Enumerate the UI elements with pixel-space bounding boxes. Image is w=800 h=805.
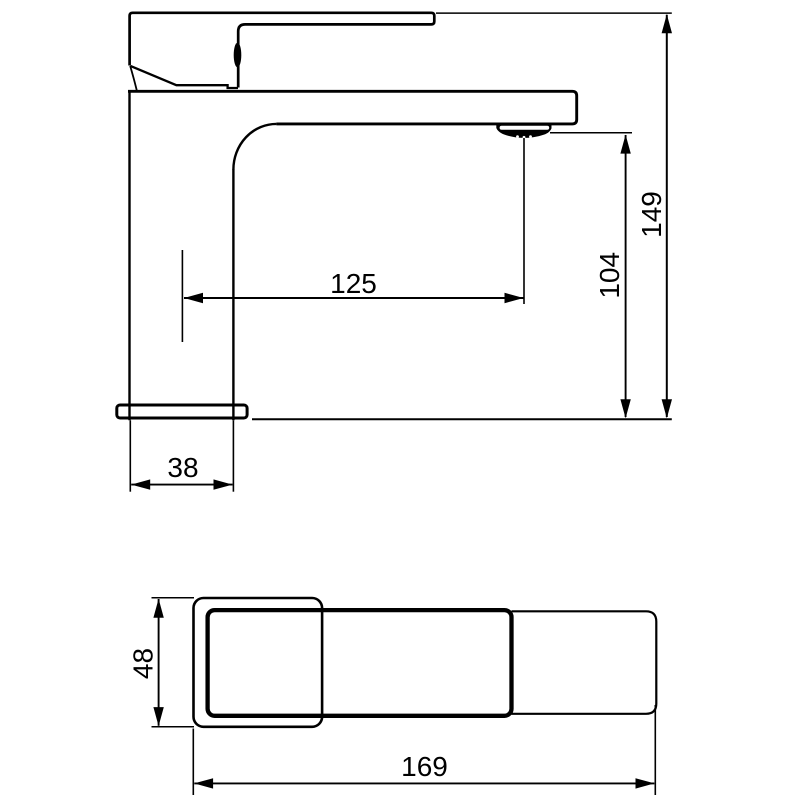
svg-text:149: 149 [636, 191, 667, 238]
svg-text:38: 38 [167, 452, 198, 483]
svg-text:104: 104 [594, 252, 625, 299]
svg-text:169: 169 [401, 751, 448, 782]
svg-text:125: 125 [330, 268, 377, 299]
svg-text:48: 48 [128, 648, 159, 679]
